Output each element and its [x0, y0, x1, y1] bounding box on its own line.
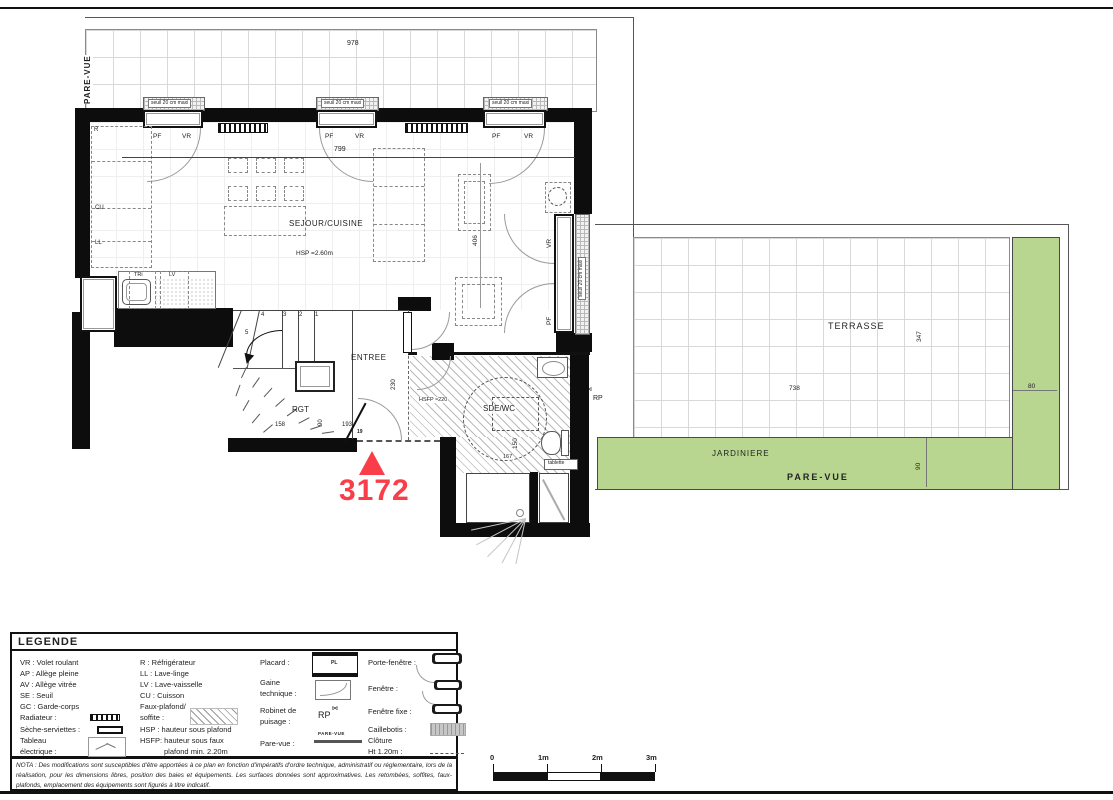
rp-legend-label: RP — [318, 710, 331, 720]
scale-tick-2m: 2m — [592, 754, 603, 762]
radiator-icon — [90, 714, 120, 721]
dim-347: 347 — [916, 331, 923, 342]
legend-item: Tableau — [20, 736, 46, 745]
sejour-label: SEJOUR/CUISINE — [289, 220, 363, 229]
legend-item: Fenêtre : — [368, 684, 398, 693]
dash-mark — [264, 388, 273, 398]
wall-sde-right — [570, 352, 589, 537]
legend-item: Pare-vue : — [260, 739, 295, 748]
seuil-label-1: seuil 20 cm maxi — [148, 99, 191, 108]
kitchen-unit-divider — [92, 161, 151, 162]
cloture-icon — [430, 753, 464, 754]
terrace2-outer-top — [595, 224, 1068, 225]
gaine-dashed-circle — [548, 187, 567, 206]
entree-label: ENTREE — [351, 354, 386, 363]
stair-num-2: 2 — [299, 312, 302, 319]
legend-item: Fenêtre fixe : — [368, 707, 412, 716]
legend-item: HSFP: hauteur sous faux — [140, 736, 224, 745]
floor-plan-sheet: PARE-VUE 978 TERRASSE 347 738 80 90 JARD… — [0, 0, 1113, 800]
wall-left-lower — [72, 312, 90, 449]
chair — [284, 158, 304, 173]
sde-dashed-rect — [492, 397, 539, 431]
chair — [256, 186, 276, 201]
unit-number: 3172 — [339, 474, 410, 507]
legend-item: technique : — [260, 689, 297, 698]
wall-right-corner — [556, 333, 592, 352]
zigzag-segment — [106, 743, 115, 748]
nota-text: NOTA : Des modifications sont susceptibl… — [16, 761, 452, 791]
wall-stair-bottom — [228, 438, 357, 452]
legend-item: LV : Lave-vaisselle — [140, 680, 202, 689]
legend-item: SE : Seuil — [20, 691, 53, 700]
fenetre-fixe-icon-inner — [435, 706, 459, 712]
page-border-bottom — [0, 791, 1113, 794]
rgt-label: RGT — [292, 406, 309, 415]
pare-vue-icon-label: PARE-VUE — [318, 732, 345, 737]
legend-item: Placard : — [260, 658, 290, 667]
sofa — [373, 148, 425, 262]
legend-item: Gaine — [260, 678, 280, 687]
chair — [256, 158, 276, 173]
nota-box: NOTA : Des modifications sont susceptibl… — [10, 757, 458, 791]
dash-mark — [322, 431, 334, 434]
legend-item: plafond min. 2.20m — [164, 747, 228, 756]
dim-80: 80 — [1028, 383, 1035, 390]
legend-box: LEGENDE VR : Volet roulant AP : Allège p… — [10, 632, 458, 758]
dash-mark — [235, 385, 240, 397]
wc-bowl — [541, 431, 561, 455]
dim-150: 150 — [512, 438, 519, 449]
scale-tick-1m: 1m — [538, 754, 549, 762]
kitchen-units — [91, 126, 152, 268]
window-right — [554, 214, 574, 333]
sde-wc-label: SDE/WC — [482, 405, 516, 414]
legend-item: puisage : — [260, 717, 290, 726]
scale-bar: 0 1m 2m 3m — [488, 752, 668, 786]
fenetre-arc — [422, 691, 436, 705]
window-left — [80, 276, 117, 332]
pare-vue-icon: PARE-VUE — [314, 732, 362, 748]
window-3-frame — [486, 113, 543, 125]
legend-item: Faux-plafond/ — [140, 702, 186, 711]
legend-item: AV : Allège vitrée — [20, 680, 77, 689]
legend-item: HSP : hauteur sous plafond — [140, 725, 232, 734]
pare-vue-bottom-label: PARE-VUE — [787, 473, 849, 483]
legend-item: Caillebotis : — [368, 725, 407, 734]
washbasin — [537, 357, 568, 378]
lv-label: LV — [169, 272, 175, 278]
terrace-tiles — [633, 237, 1010, 439]
porte-fenetre-icon — [432, 653, 462, 664]
window-2 — [316, 110, 377, 128]
wall-top-c — [377, 108, 483, 122]
shower-tray — [466, 473, 530, 523]
terrace-top-line — [85, 17, 634, 18]
rp-valve-icon: ⋈ — [332, 706, 338, 713]
tablette-label: tablette — [548, 461, 564, 467]
coffee-table-2-inner — [462, 284, 495, 319]
window-3 — [483, 110, 546, 128]
legend-item: VR : Volet roulant — [20, 658, 78, 667]
legend-item: soffite : — [140, 713, 164, 722]
coffee-table-1-inner — [464, 181, 485, 224]
legend-item: électrique : — [20, 747, 57, 756]
wall-right-upper — [574, 108, 592, 214]
gaine-curve — [320, 683, 347, 696]
radiator-2 — [405, 123, 468, 133]
jardiniere-tick-v — [926, 438, 927, 487]
legend-item: CU : Cuisson — [140, 691, 184, 700]
scale-tickmark — [601, 764, 602, 772]
jardiniere-label: JARDINIERE — [712, 450, 770, 459]
window-1 — [143, 110, 203, 128]
dash-mark — [252, 377, 260, 387]
seuil-label-2: seuil 20 cm maxi — [321, 99, 364, 108]
dim-230: 230 — [390, 379, 397, 390]
wall-left-upper — [75, 108, 90, 278]
dash-mark — [298, 417, 309, 424]
legend-title: LEGENDE — [18, 636, 78, 648]
chair — [228, 186, 248, 201]
partition-entree-left — [352, 310, 353, 439]
seuil-label-right: seuil 20 cm maxi — [578, 257, 586, 300]
dash-mark — [243, 400, 250, 411]
wall-thick-corner — [114, 308, 233, 347]
washbasin-bowl — [542, 361, 565, 376]
legend-item: Sèche-serviettes : — [20, 725, 80, 734]
dim-line-799 — [122, 157, 575, 158]
wc-tank — [561, 430, 569, 456]
pare-vue-left-label: PARE-VUE — [84, 55, 93, 104]
fenetre-icon-inner — [437, 682, 459, 688]
stair-num-3: 3 — [283, 312, 286, 319]
dim-978: 978 — [347, 40, 359, 48]
scale-tickmark — [493, 764, 494, 772]
seuil-label-3: seuil 20 cm maxi — [489, 99, 532, 108]
pare-vue-icon-line — [314, 740, 362, 743]
dash-mark — [263, 424, 273, 432]
towel-dryer-icon — [97, 726, 123, 734]
terrasse-label: TERRASSE — [828, 322, 885, 332]
legend-item: Clôture — [368, 736, 392, 745]
lavelinge-label: LL — [95, 240, 102, 247]
terrace2-outer-right — [1068, 224, 1069, 490]
dim-90-rgt: 90 — [318, 419, 325, 426]
electrical-panel-icon — [88, 737, 126, 757]
shower-door-box — [539, 473, 569, 523]
legend-item: R : Réfrigérateur — [140, 658, 195, 667]
legend-item: Porte-fenêtre : — [368, 658, 416, 667]
dash-mark — [252, 414, 260, 424]
dim-158: 158 — [275, 422, 285, 429]
placard-icon: PL — [312, 652, 358, 677]
legend-title-row: LEGENDE — [12, 634, 456, 651]
legend-item: Radiateur : — [20, 713, 57, 722]
sofa-divider — [374, 186, 424, 187]
chair — [284, 186, 304, 201]
porte-fenetre-icon-inner — [435, 655, 459, 662]
dim-19: 19 — [357, 430, 363, 436]
rp-label: RP — [593, 395, 603, 403]
shower-drain — [516, 509, 524, 517]
radiator-1 — [218, 123, 268, 133]
soffit-hatch-icon — [190, 708, 238, 725]
wall-top-b — [202, 108, 316, 122]
dim-738: 738 — [789, 385, 800, 392]
dash-mark — [275, 398, 285, 407]
stair-num-1: 1 — [315, 312, 318, 319]
fenetre-fixe-icon — [432, 704, 462, 714]
legend-item: Ht 1.20m : — [368, 747, 403, 756]
fridge-label: R — [94, 127, 98, 134]
gaine-technique-icon — [315, 680, 351, 700]
jardiniere-right — [1012, 237, 1060, 490]
scale-tick-0: 0 — [490, 754, 494, 762]
dash-mark — [241, 367, 247, 378]
chair — [228, 158, 248, 173]
scale-segment-black — [493, 772, 547, 781]
entrance-threshold — [357, 440, 440, 442]
fenetre-icon — [434, 680, 462, 690]
wall-door-stub — [398, 297, 431, 311]
dim-799: 799 — [334, 146, 346, 154]
page-border-top — [0, 7, 1113, 9]
stair-num-4: 4 — [261, 312, 264, 319]
window-right-frame — [557, 217, 571, 330]
legend-item: LL : Lave-linge — [140, 669, 189, 678]
wall-sde-left — [440, 437, 456, 537]
legend-item: GC : Garde-corps — [20, 702, 79, 711]
dim-167: 167 — [503, 454, 512, 460]
placard-pl-label: PL — [331, 661, 337, 667]
hsfp-label: HSFP ≈220 — [418, 397, 448, 403]
window-left-frame — [83, 279, 114, 329]
legend-item: Robinet de — [260, 706, 296, 715]
sofa-divider — [374, 224, 424, 225]
tri-label: TRi — [134, 272, 143, 278]
terrace-right-line — [633, 17, 634, 237]
shower-door-leaf — [542, 479, 565, 521]
dim-193: 193 — [342, 422, 352, 429]
dim-line-406 — [480, 163, 481, 308]
hsp-label: HSP =2.60m — [296, 250, 333, 257]
scale-tickmark — [655, 764, 656, 772]
legend-item: AP : Allège pleine — [20, 669, 79, 678]
caillebotis-icon — [430, 723, 466, 736]
window-2-frame — [319, 113, 374, 125]
window-1-frame — [146, 113, 200, 125]
dim-406: 406 — [472, 235, 479, 246]
door-panel-sejour — [403, 312, 412, 353]
stair-num-5: 5 — [245, 330, 248, 337]
shower-partition — [530, 472, 538, 524]
cuisson-label: CU — [95, 205, 104, 212]
scale-tickmark — [547, 764, 548, 772]
scale-segment-white — [547, 772, 601, 781]
dim-90-jardiniere: 90 — [915, 463, 922, 470]
scale-segment-black — [601, 772, 655, 781]
partition-sde-top-b — [449, 352, 590, 355]
entrance-marker-icon — [359, 451, 385, 475]
porte-fenetre-arc — [416, 665, 434, 683]
jardiniere-tick-h — [1013, 390, 1057, 391]
scale-tick-3m: 3m — [646, 754, 657, 762]
